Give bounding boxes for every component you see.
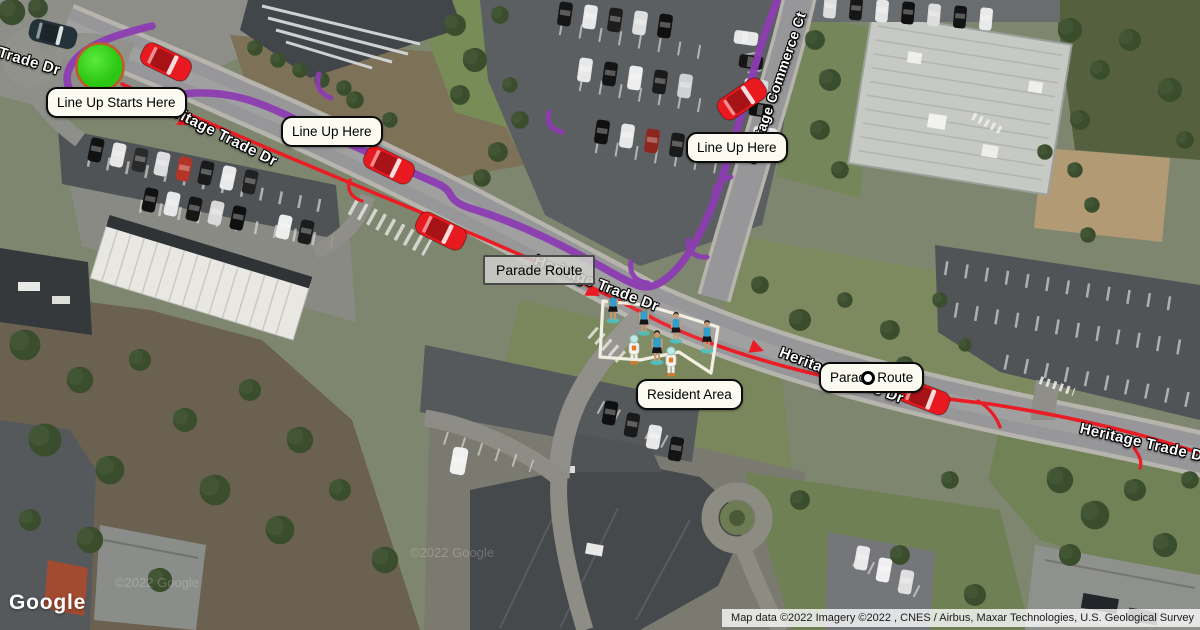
parade-route-mid-label: Parade Route [483, 255, 595, 285]
resident-area-label: Resident Area [636, 379, 743, 410]
google-logo[interactable]: Google [9, 591, 86, 615]
parade-route-east-label: Parade Route [819, 362, 924, 393]
map-attribution: Map data ©2022 Imagery ©2022 , CNES / Ai… [722, 609, 1200, 627]
line-up-here-north-label: Line Up Here [686, 132, 788, 163]
line-up-starts-here-label: Line Up Starts Here [46, 87, 187, 118]
route-point-marker [861, 371, 875, 385]
parade-route-map: Trade Dr Heritage Trade Dr Heritage Trad… [0, 0, 1200, 630]
line-up-start-marker [77, 44, 124, 91]
google-watermark: ©2022 Google [115, 575, 199, 590]
line-up-here-west-label: Line Up Here [281, 116, 383, 147]
building-top-right [848, 13, 1071, 195]
google-watermark: ©2022 Google [410, 545, 494, 560]
